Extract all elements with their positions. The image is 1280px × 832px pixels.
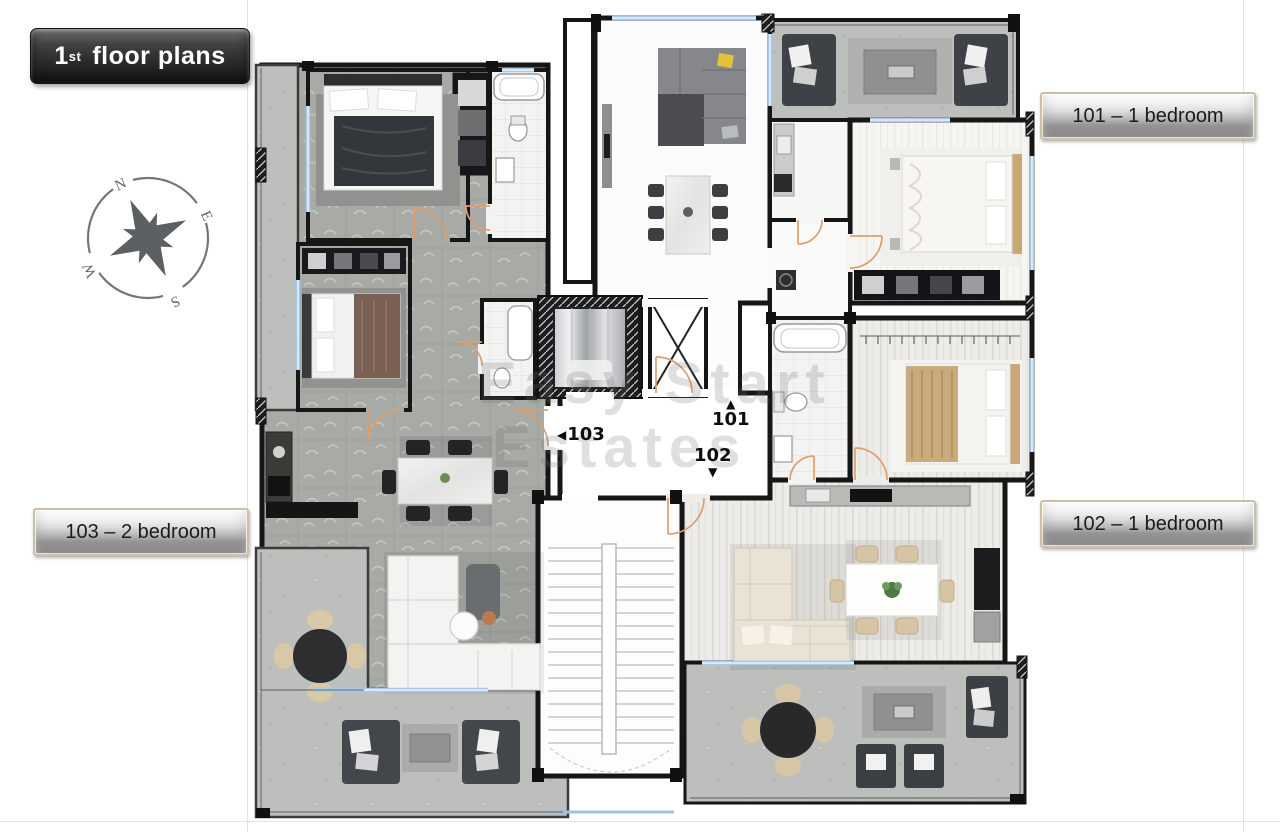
sink <box>496 158 514 182</box>
compass-rose-icon: N E S W <box>73 163 223 313</box>
dining-table-102 <box>830 540 954 640</box>
sofa-white-103 <box>384 552 544 694</box>
laundry-101 <box>776 270 796 290</box>
service-duct <box>565 20 593 282</box>
unit-103-button[interactable]: 103 – 2 bedroom <box>33 508 249 556</box>
stool <box>482 611 496 625</box>
title-number: 1 <box>54 42 68 71</box>
sofa-cream-102 <box>730 544 856 670</box>
wardrobe-clothes <box>458 80 486 166</box>
balcony-103-left <box>256 65 298 410</box>
armchair <box>466 564 500 620</box>
unit-101-button[interactable]: 101 – 1 bedroom <box>1040 92 1256 140</box>
coffee-table-round <box>450 612 478 640</box>
hall-101 <box>770 220 850 318</box>
bed-white-101 <box>880 148 1022 266</box>
slide-page: 1stfloor plans N E S W 101 – 1 bedroom 1… <box>0 0 1280 832</box>
dining-table-103 <box>382 436 508 526</box>
unit-102-button[interactable]: 102 – 1 bedroom <box>1040 500 1256 548</box>
guide-line-left <box>247 0 248 832</box>
title-ordinal: st <box>69 49 82 64</box>
arrow-left-icon: ◀ <box>557 429 566 441</box>
page-title: 1stfloor plans <box>30 28 250 84</box>
hallway-label-101: ▲ 101 <box>712 398 750 429</box>
hallway-label-103: ◀ 103 <box>557 426 605 444</box>
arrow-down-icon: ▼ <box>708 466 717 478</box>
kitchen-101-fixtures <box>774 124 794 196</box>
elevator-door <box>566 392 614 399</box>
sofa-gray-101 <box>658 48 746 146</box>
title-text: floor plans <box>92 42 225 71</box>
hallway-label-102: 102 ▼ <box>694 447 732 478</box>
wardrobe-101 <box>854 270 1000 300</box>
bed-brown <box>302 288 406 388</box>
bed-dark <box>324 74 442 190</box>
bed-tan-102 <box>890 360 1022 472</box>
floor-plan <box>250 8 1040 826</box>
closet-row-103 <box>302 248 406 274</box>
compass-star-icon <box>92 182 204 294</box>
balcony-set-101 <box>782 34 1008 106</box>
